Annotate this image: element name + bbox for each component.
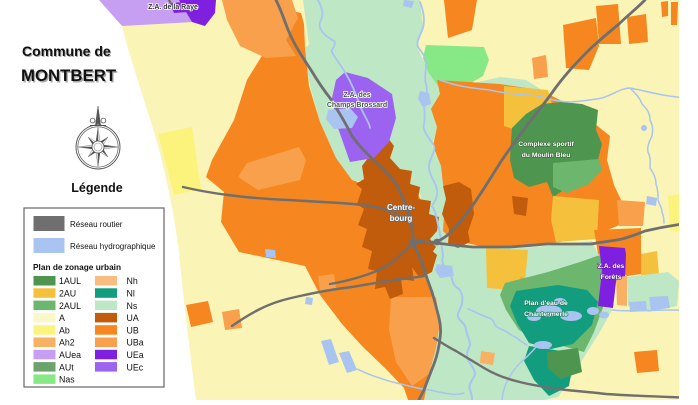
- svg-text:Champs Brossard: Champs Brossard: [327, 102, 387, 109]
- svg-text:Plan d'eau de: Plan d'eau de: [524, 300, 568, 307]
- svg-text:Chantermerle: Chantermerle: [524, 311, 568, 318]
- svg-text:UA: UA: [127, 313, 139, 323]
- svg-text:Nl: Nl: [127, 289, 135, 299]
- svg-text:2AU: 2AU: [59, 289, 76, 299]
- svg-text:Z.A. des: Z.A. des: [598, 263, 625, 270]
- svg-text:2AUL: 2AUL: [59, 301, 81, 311]
- svg-text:Z.A. des: Z.A. des: [343, 92, 370, 99]
- svg-text:Commune de: Commune de: [22, 43, 111, 59]
- svg-text:Forêts: Forêts: [601, 274, 622, 281]
- svg-text:Ah2: Ah2: [59, 338, 75, 348]
- svg-text:A: A: [59, 313, 65, 323]
- svg-text:UB: UB: [127, 325, 139, 335]
- svg-text:UEa: UEa: [127, 350, 144, 360]
- svg-text:Réseau hydrographique: Réseau hydrographique: [70, 242, 156, 251]
- svg-text:1AUL: 1AUL: [59, 276, 81, 286]
- svg-text:Légende: Légende: [71, 181, 122, 195]
- svg-text:Plan de zonage urbain: Plan de zonage urbain: [33, 262, 121, 272]
- svg-text:bourg: bourg: [390, 214, 413, 223]
- svg-text:Centre-: Centre-: [387, 203, 415, 212]
- svg-text:UBa: UBa: [127, 338, 144, 348]
- svg-text:AUt: AUt: [59, 362, 74, 372]
- svg-text:MONTBERT: MONTBERT: [21, 66, 117, 85]
- svg-text:Nas: Nas: [59, 375, 75, 385]
- svg-text:Réseau routier: Réseau routier: [70, 220, 123, 229]
- svg-text:Complexe sportif: Complexe sportif: [518, 141, 574, 148]
- svg-text:UEc: UEc: [127, 362, 144, 372]
- svg-text:AUea: AUea: [59, 350, 81, 360]
- svg-text:Ns: Ns: [127, 301, 138, 311]
- svg-text:du Moulin Bleu: du Moulin Bleu: [522, 152, 571, 159]
- svg-text:Z.A. de la Raye: Z.A. de la Raye: [148, 4, 198, 11]
- svg-text:Ab: Ab: [59, 325, 70, 335]
- svg-text:Nh: Nh: [127, 276, 138, 286]
